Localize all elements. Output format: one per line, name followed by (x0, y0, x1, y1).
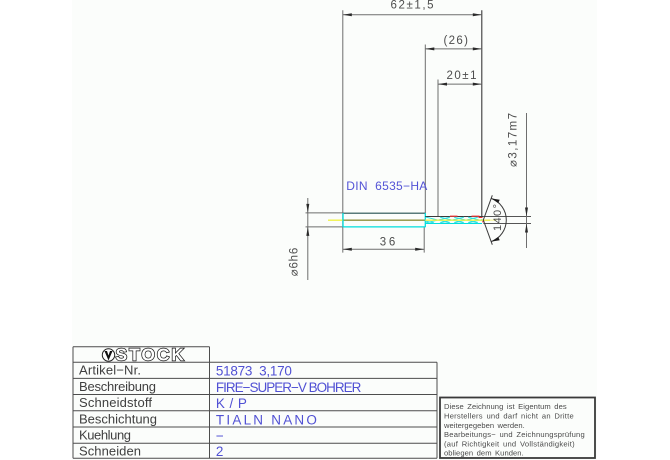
svg-text:Herstellers und darf nicht an: Herstellers und darf nicht an Dritte (444, 412, 574, 421)
svg-text:51873 3,170: 51873 3,170 (216, 364, 292, 379)
svg-text:DIN 6535−HA: DIN 6535−HA (346, 179, 427, 193)
svg-text:⌀3,17m7: ⌀3,17m7 (508, 113, 520, 167)
svg-text:(auf Richtigkeit und Vollständ: (auf Richtigkeit und Vollständigkeit) (444, 439, 575, 448)
svg-text:⌀6h6: ⌀6h6 (289, 248, 301, 277)
svg-text:obliegen dem Kunden.: obliegen dem Kunden. (444, 449, 524, 458)
svg-text:Kuehlung: Kuehlung (79, 428, 131, 443)
svg-text:20±1: 20±1 (447, 70, 477, 82)
svg-text:Bearbeitungs− und Zeichnungspr: Bearbeitungs− und Zeichnungsprüfung (444, 430, 585, 439)
svg-text:STOCK: STOCK (116, 345, 185, 365)
svg-text:(26): (26) (443, 35, 468, 47)
svg-text:2: 2 (216, 444, 224, 459)
svg-text:Schneiden: Schneiden (79, 443, 141, 458)
svg-text:Diese Zeichnung ist Eigentum d: Diese Zeichnung ist Eigentum des (444, 402, 567, 411)
svg-text:Artikel−Nr.: Artikel−Nr. (79, 363, 141, 378)
svg-text:−: − (216, 429, 224, 444)
svg-text:FIRE−SUPER−V BOHRER: FIRE−SUPER−V BOHRER (216, 380, 362, 395)
svg-text:weitergegeben werden.: weitergegeben werden. (443, 421, 525, 430)
svg-text:K/P: K/P (216, 396, 247, 411)
svg-text:140°: 140° (492, 204, 504, 231)
svg-text:Beschreibung: Beschreibung (79, 379, 156, 394)
svg-text:Schneidstoff: Schneidstoff (79, 395, 152, 410)
svg-text:Beschichtung: Beschichtung (79, 411, 157, 426)
